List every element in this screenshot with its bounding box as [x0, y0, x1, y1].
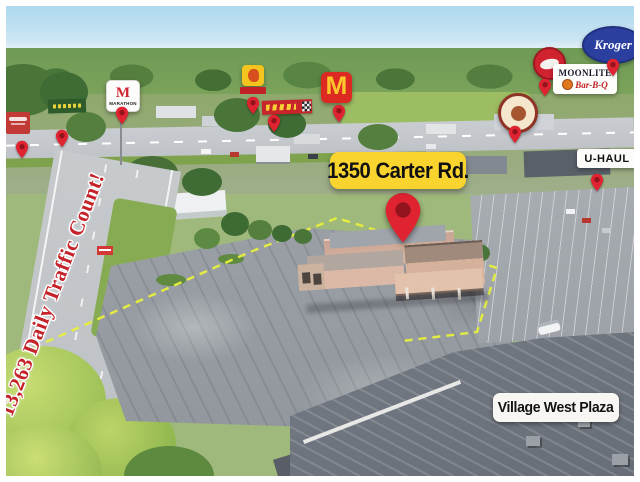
mcdonalds-logo: M — [321, 72, 352, 103]
kroger-wordmark: Kroger — [594, 37, 632, 53]
map-pin-icon-redcircle — [538, 78, 552, 97]
moonlite-barbq-wordmark: Bar-B-Q — [575, 80, 608, 90]
listing-photo-frame: M MARATHON M Kroger MOONLITE Bar-B-Q U-H… — [0, 0, 640, 482]
banner-text-marks — [266, 104, 296, 111]
trees — [272, 225, 292, 242]
yard-sign — [97, 246, 113, 255]
map-pin-icon-left-1 — [55, 129, 69, 148]
uhaul-logo: U-HAUL — [577, 149, 634, 168]
trees — [221, 212, 249, 236]
trees — [248, 220, 272, 240]
map-pin-icon-chicken — [246, 96, 260, 115]
badge-emblem-icon — [511, 106, 526, 121]
aerial-photo: M MARATHON M Kroger MOONLITE Bar-B-Q U-H… — [6, 6, 634, 476]
map-pin-icon-moonlite — [606, 58, 620, 77]
moonlite-wordmark: MOONLITE — [559, 68, 612, 78]
porch-opening — [313, 273, 322, 285]
chicken-restaurant-banner — [240, 87, 266, 94]
pig-emblem-icon — [562, 79, 573, 90]
rooster-icon — [248, 69, 259, 82]
map-pin-icon-marathon — [115, 106, 129, 125]
auto-parts-banner-sign — [262, 99, 312, 115]
map-pin-icon-uhaul — [590, 173, 604, 192]
plaza-text: Village West Plaza — [498, 399, 614, 416]
address-text: 1350 Carter Rd. — [327, 158, 469, 184]
uhaul-wordmark: U-HAUL — [584, 153, 629, 165]
checkered-flag-mark — [302, 101, 311, 111]
map-pin-icon — [267, 114, 281, 133]
green-billboard — [48, 98, 86, 113]
address-label: 1350 Carter Rd. — [330, 152, 466, 189]
map-pin-icon-badge — [508, 125, 522, 144]
chicken-restaurant-logo — [242, 65, 264, 86]
map-pin-icon-mcdonalds — [332, 104, 346, 123]
golden-arches-icon: M — [326, 74, 348, 99]
map-pin-icon-left-2 — [15, 140, 29, 159]
trees — [194, 228, 220, 249]
marathon-m-logo: M — [116, 86, 130, 101]
plaza-label: Village West Plaza — [493, 393, 619, 422]
porch-opening — [302, 272, 311, 284]
red-script-sign — [6, 112, 30, 134]
subject-property-pin-icon — [383, 191, 423, 245]
